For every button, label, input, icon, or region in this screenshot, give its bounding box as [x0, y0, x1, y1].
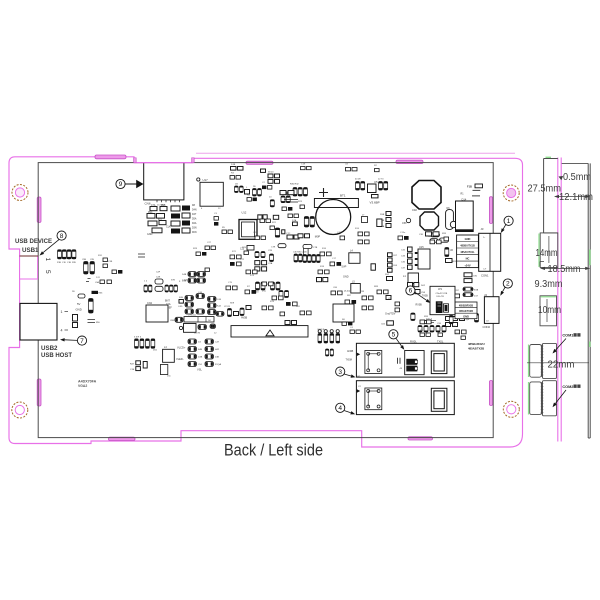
- svg-text:D4B: D4B: [198, 357, 203, 359]
- svg-text:CN=PCC2B: CN=PCC2B: [436, 293, 448, 295]
- svg-text:DR+TR: DR+TR: [437, 296, 445, 298]
- svg-text:GND: GND: [343, 276, 349, 279]
- svg-text:D0N: D0N: [192, 232, 197, 234]
- svg-text:37B: 37B: [171, 280, 175, 282]
- svg-text:4: 4: [61, 329, 63, 333]
- svg-text:AN0B: AN0B: [347, 350, 354, 353]
- svg-text:C3B: C3B: [108, 261, 113, 263]
- svg-text:1: 1: [44, 258, 51, 262]
- svg-text:P-Y3: P-Y3: [345, 291, 351, 293]
- svg-text:7: 7: [80, 338, 84, 345]
- svg-text:2: 2: [506, 281, 510, 288]
- svg-text:Back / Left side: Back / Left side: [224, 441, 323, 460]
- svg-text:C7E: C7E: [271, 246, 276, 248]
- svg-text:U17: U17: [203, 178, 209, 182]
- svg-text:D5B: D5B: [380, 214, 385, 216]
- svg-text:8: 8: [60, 233, 64, 240]
- svg-text:C2E: C2E: [156, 277, 161, 279]
- svg-text:1: 1: [61, 310, 63, 314]
- svg-text:R9B: R9B: [161, 205, 166, 207]
- svg-text:BT1: BT1: [340, 194, 346, 198]
- svg-text:RX0B: RX0B: [416, 304, 423, 307]
- svg-text:D5A: D5A: [192, 218, 197, 221]
- svg-text:GND: GND: [463, 315, 469, 319]
- svg-text:CN6: CN6: [145, 202, 151, 206]
- svg-text:A4DX70FA: A4DX70FA: [78, 380, 97, 384]
- svg-text:CN2: CN2: [147, 302, 153, 305]
- svg-text:GND: GND: [147, 233, 153, 236]
- svg-text:COM2: COM2: [562, 385, 573, 389]
- svg-text:R2E: R2E: [72, 262, 77, 264]
- svg-text:USB HOST: USB HOST: [41, 352, 73, 359]
- svg-text:R30 R32: R30 R32: [290, 184, 299, 186]
- svg-text:C2A: C2A: [268, 262, 273, 265]
- svg-text:40 2E: 40 2E: [355, 179, 361, 181]
- svg-text:5: 5: [44, 270, 51, 274]
- svg-text:INT: INT: [158, 218, 162, 221]
- svg-text:C30 R30 C32B: C30 R30 C32B: [293, 252, 307, 254]
- svg-text:R1B: R1B: [57, 262, 62, 264]
- svg-text:3B 7B: 3B 7B: [194, 333, 200, 335]
- svg-text:R9C: R9C: [148, 212, 153, 214]
- svg-text:12.1mm: 12.1mm: [559, 192, 593, 203]
- svg-text:D3N: D3N: [192, 228, 197, 230]
- svg-text:CN8: CN8: [170, 320, 175, 322]
- svg-text:FVQA: FVQA: [215, 363, 221, 366]
- svg-text:22 70: 22 70: [378, 179, 384, 181]
- svg-text:5V: 5V: [77, 302, 81, 306]
- svg-text:VSL: VSL: [197, 368, 202, 372]
- svg-text:Gnd/TDV: Gnd/TDV: [385, 313, 396, 316]
- svg-text:D2A: D2A: [192, 222, 197, 225]
- svg-text:VLED-: VLED-: [176, 357, 184, 361]
- svg-text:C5J: C5J: [198, 364, 202, 366]
- svg-text:D7A: D7A: [292, 219, 297, 222]
- svg-text:CON2: CON2: [483, 325, 491, 329]
- svg-text:22mm: 22mm: [548, 359, 575, 370]
- svg-text:485AU/TX1L: 485AU/TX1L: [460, 251, 475, 254]
- svg-text:M0P: M0P: [315, 235, 321, 239]
- svg-text:USB2: USB2: [41, 345, 58, 352]
- svg-text:485A2/TX2B: 485A2/TX2B: [468, 346, 484, 350]
- svg-text:D4N: D4N: [192, 210, 197, 212]
- svg-text:485A2/TX2B: 485A2/TX2B: [459, 310, 473, 313]
- svg-text:U5: U5: [374, 180, 378, 184]
- svg-text:D4T: D4T: [192, 214, 197, 216]
- svg-text:9.3mm: 9.3mm: [535, 279, 563, 290]
- svg-text:TX0M: TX0M: [346, 359, 352, 362]
- svg-text:3: 3: [338, 369, 342, 376]
- svg-text:CON1: CON1: [481, 274, 489, 278]
- svg-text:38 20: 38 20: [268, 172, 274, 174]
- svg-text:NC: NC: [466, 257, 470, 261]
- svg-text:GND: GND: [76, 308, 82, 312]
- svg-text:CLK: CLK: [166, 225, 171, 228]
- svg-text:+24V: +24V: [464, 263, 470, 267]
- svg-text:USB1: USB1: [22, 247, 39, 254]
- svg-text:K0E: K0E: [179, 297, 184, 299]
- svg-text:D1B: D1B: [231, 164, 236, 166]
- svg-text:VLCD+: VLCD+: [177, 346, 186, 350]
- svg-text:B4B: B4B: [198, 349, 203, 351]
- svg-text:C1D: C1D: [62, 262, 67, 264]
- svg-text:3 3 R 3: 3 3 R 3: [134, 337, 142, 339]
- svg-text:D4B: D4B: [182, 274, 187, 276]
- svg-text:1: 1: [507, 218, 511, 225]
- svg-text:C53: C53: [402, 222, 407, 225]
- svg-text:27.5mm: 27.5mm: [528, 184, 562, 195]
- svg-text:B7A: B7A: [474, 289, 479, 292]
- svg-text:C4D: C4D: [178, 306, 183, 308]
- svg-text:TX0L: TX0L: [437, 339, 444, 343]
- svg-text:C7A: C7A: [151, 204, 156, 207]
- svg-text:10mm: 10mm: [538, 305, 561, 316]
- svg-text:485BU/TX1B: 485BU/TX1B: [460, 245, 475, 248]
- svg-text:485B2/RX2B: 485B2/RX2B: [459, 304, 474, 307]
- svg-text:8 9 9 8: 8 9 9 8: [318, 329, 325, 331]
- svg-text:9: 9: [119, 181, 123, 188]
- svg-text:COM1: COM1: [562, 334, 573, 338]
- svg-text:U12: U12: [242, 211, 247, 215]
- svg-text:JP1: JP1: [438, 288, 443, 291]
- svg-text:24B: 24B: [215, 357, 219, 359]
- svg-text:C9B: C9B: [82, 259, 87, 261]
- svg-text:TX0B: TX0B: [422, 294, 428, 297]
- svg-text:C2F: C2F: [156, 272, 161, 274]
- svg-text:GND: GND: [465, 237, 471, 241]
- svg-text:4: 4: [338, 405, 342, 412]
- svg-text:5VP: 5VP: [342, 265, 347, 269]
- svg-text:201: 201: [208, 320, 211, 322]
- svg-text:C7C: C7C: [286, 233, 291, 235]
- svg-text:C1E: C1E: [130, 369, 135, 371]
- svg-text:F1B: F1B: [467, 184, 472, 188]
- svg-text:0.5mm: 0.5mm: [563, 172, 591, 183]
- svg-text:18.5mm: 18.5mm: [548, 264, 581, 275]
- svg-text:U15: U15: [419, 246, 424, 249]
- svg-text:CD2: CD2: [412, 209, 417, 212]
- svg-text:R66b: R66b: [455, 333, 461, 335]
- svg-text:J3: J3: [481, 227, 484, 231]
- svg-text:C2E: C2E: [90, 259, 95, 261]
- svg-text:RX0L: RX0L: [410, 339, 417, 343]
- svg-text:D14: D14: [462, 197, 467, 201]
- svg-text:C13a: C13a: [400, 232, 406, 234]
- svg-text:C30b: C30b: [284, 197, 290, 199]
- svg-text:VCC8: VCC8: [224, 306, 231, 308]
- svg-text:U1A: U1A: [95, 281, 100, 284]
- svg-text:V3.6BP: V3.6BP: [370, 201, 380, 205]
- svg-text:C10b: C10b: [182, 280, 188, 282]
- svg-text:USB DEVICE: USB DEVICE: [15, 238, 52, 245]
- svg-text:C7B: C7B: [313, 247, 318, 249]
- svg-text:5: 5: [392, 332, 396, 339]
- svg-text:14mm: 14mm: [536, 248, 558, 259]
- svg-text:6: 6: [409, 288, 413, 295]
- svg-text:AV5B: AV5B: [241, 316, 248, 319]
- svg-text:C1B: C1B: [67, 262, 72, 264]
- svg-text:C1E: C1E: [301, 164, 306, 166]
- svg-text:VGA2: VGA2: [78, 384, 87, 388]
